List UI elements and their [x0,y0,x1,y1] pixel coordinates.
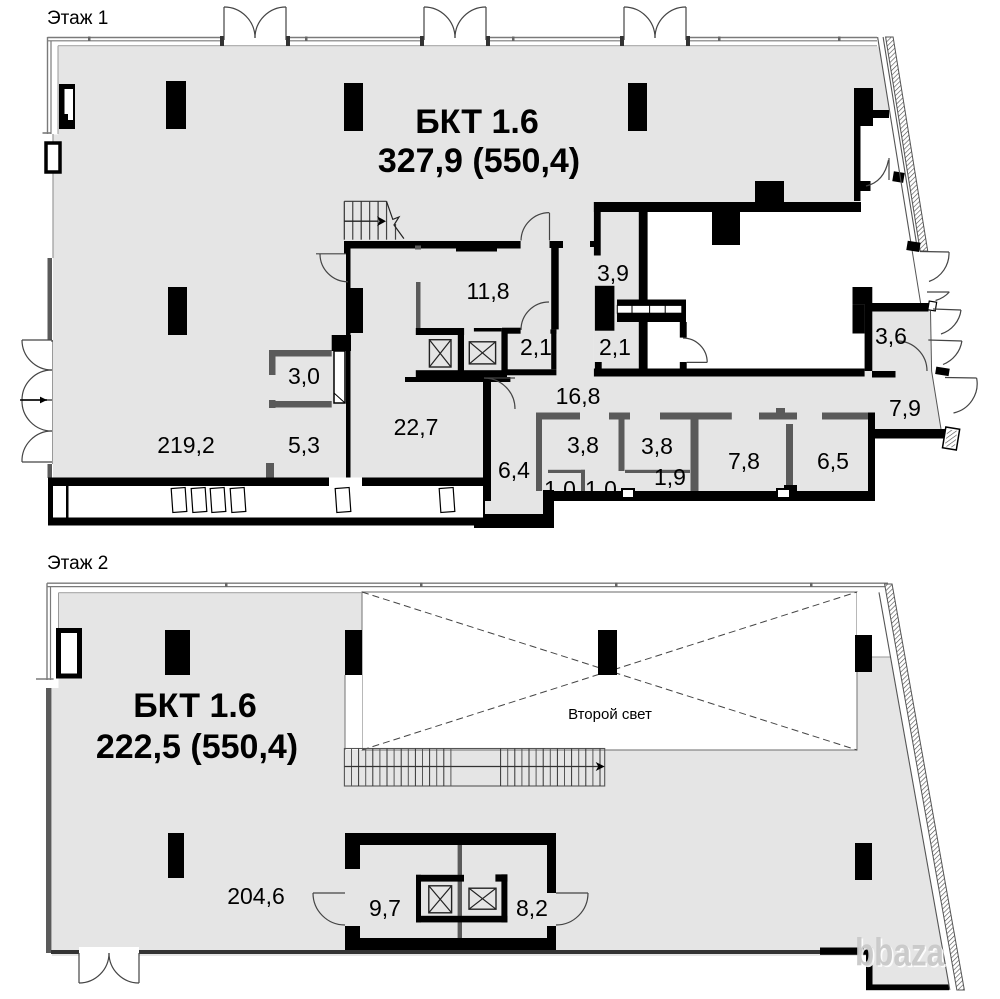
svg-text:222,5 (550,4): 222,5 (550,4) [96,728,298,766]
svg-text:7,9: 7,9 [889,395,921,421]
svg-text:БКТ 1.6: БКТ 1.6 [415,103,539,141]
svg-text:1,0: 1,0 [544,476,576,502]
svg-text:3,8: 3,8 [641,433,673,459]
svg-text:3,6: 3,6 [875,323,907,349]
svg-text:3,9: 3,9 [597,260,629,286]
svg-text:Этаж 1: Этаж 1 [47,8,108,29]
svg-text:22,7: 22,7 [394,414,439,440]
svg-text:1,0: 1,0 [585,476,617,502]
svg-text:5,3: 5,3 [288,432,320,458]
svg-text:6,4: 6,4 [498,457,530,483]
svg-text:204,6: 204,6 [227,883,285,909]
svg-text:9,7: 9,7 [369,895,401,921]
svg-text:Этаж 2: Этаж 2 [47,553,108,574]
svg-text:БКТ 1.6: БКТ 1.6 [133,687,257,725]
svg-text:16,8: 16,8 [556,383,601,409]
svg-text:7,8: 7,8 [728,448,760,474]
svg-text:2,1: 2,1 [599,334,631,360]
svg-text:3,0: 3,0 [288,363,320,389]
svg-text:327,9 (550,4): 327,9 (550,4) [378,142,580,180]
svg-text:Второй свет: Второй свет [568,706,652,723]
svg-text:3,8: 3,8 [567,432,599,458]
svg-text:11,8: 11,8 [466,278,509,304]
svg-text:1,9: 1,9 [654,464,686,490]
svg-text:bbaza: bbaza [855,932,944,975]
svg-text:219,2: 219,2 [157,432,215,458]
svg-text:2,1: 2,1 [520,334,552,360]
svg-text:8,2: 8,2 [516,895,548,921]
svg-text:6,5: 6,5 [817,448,849,474]
